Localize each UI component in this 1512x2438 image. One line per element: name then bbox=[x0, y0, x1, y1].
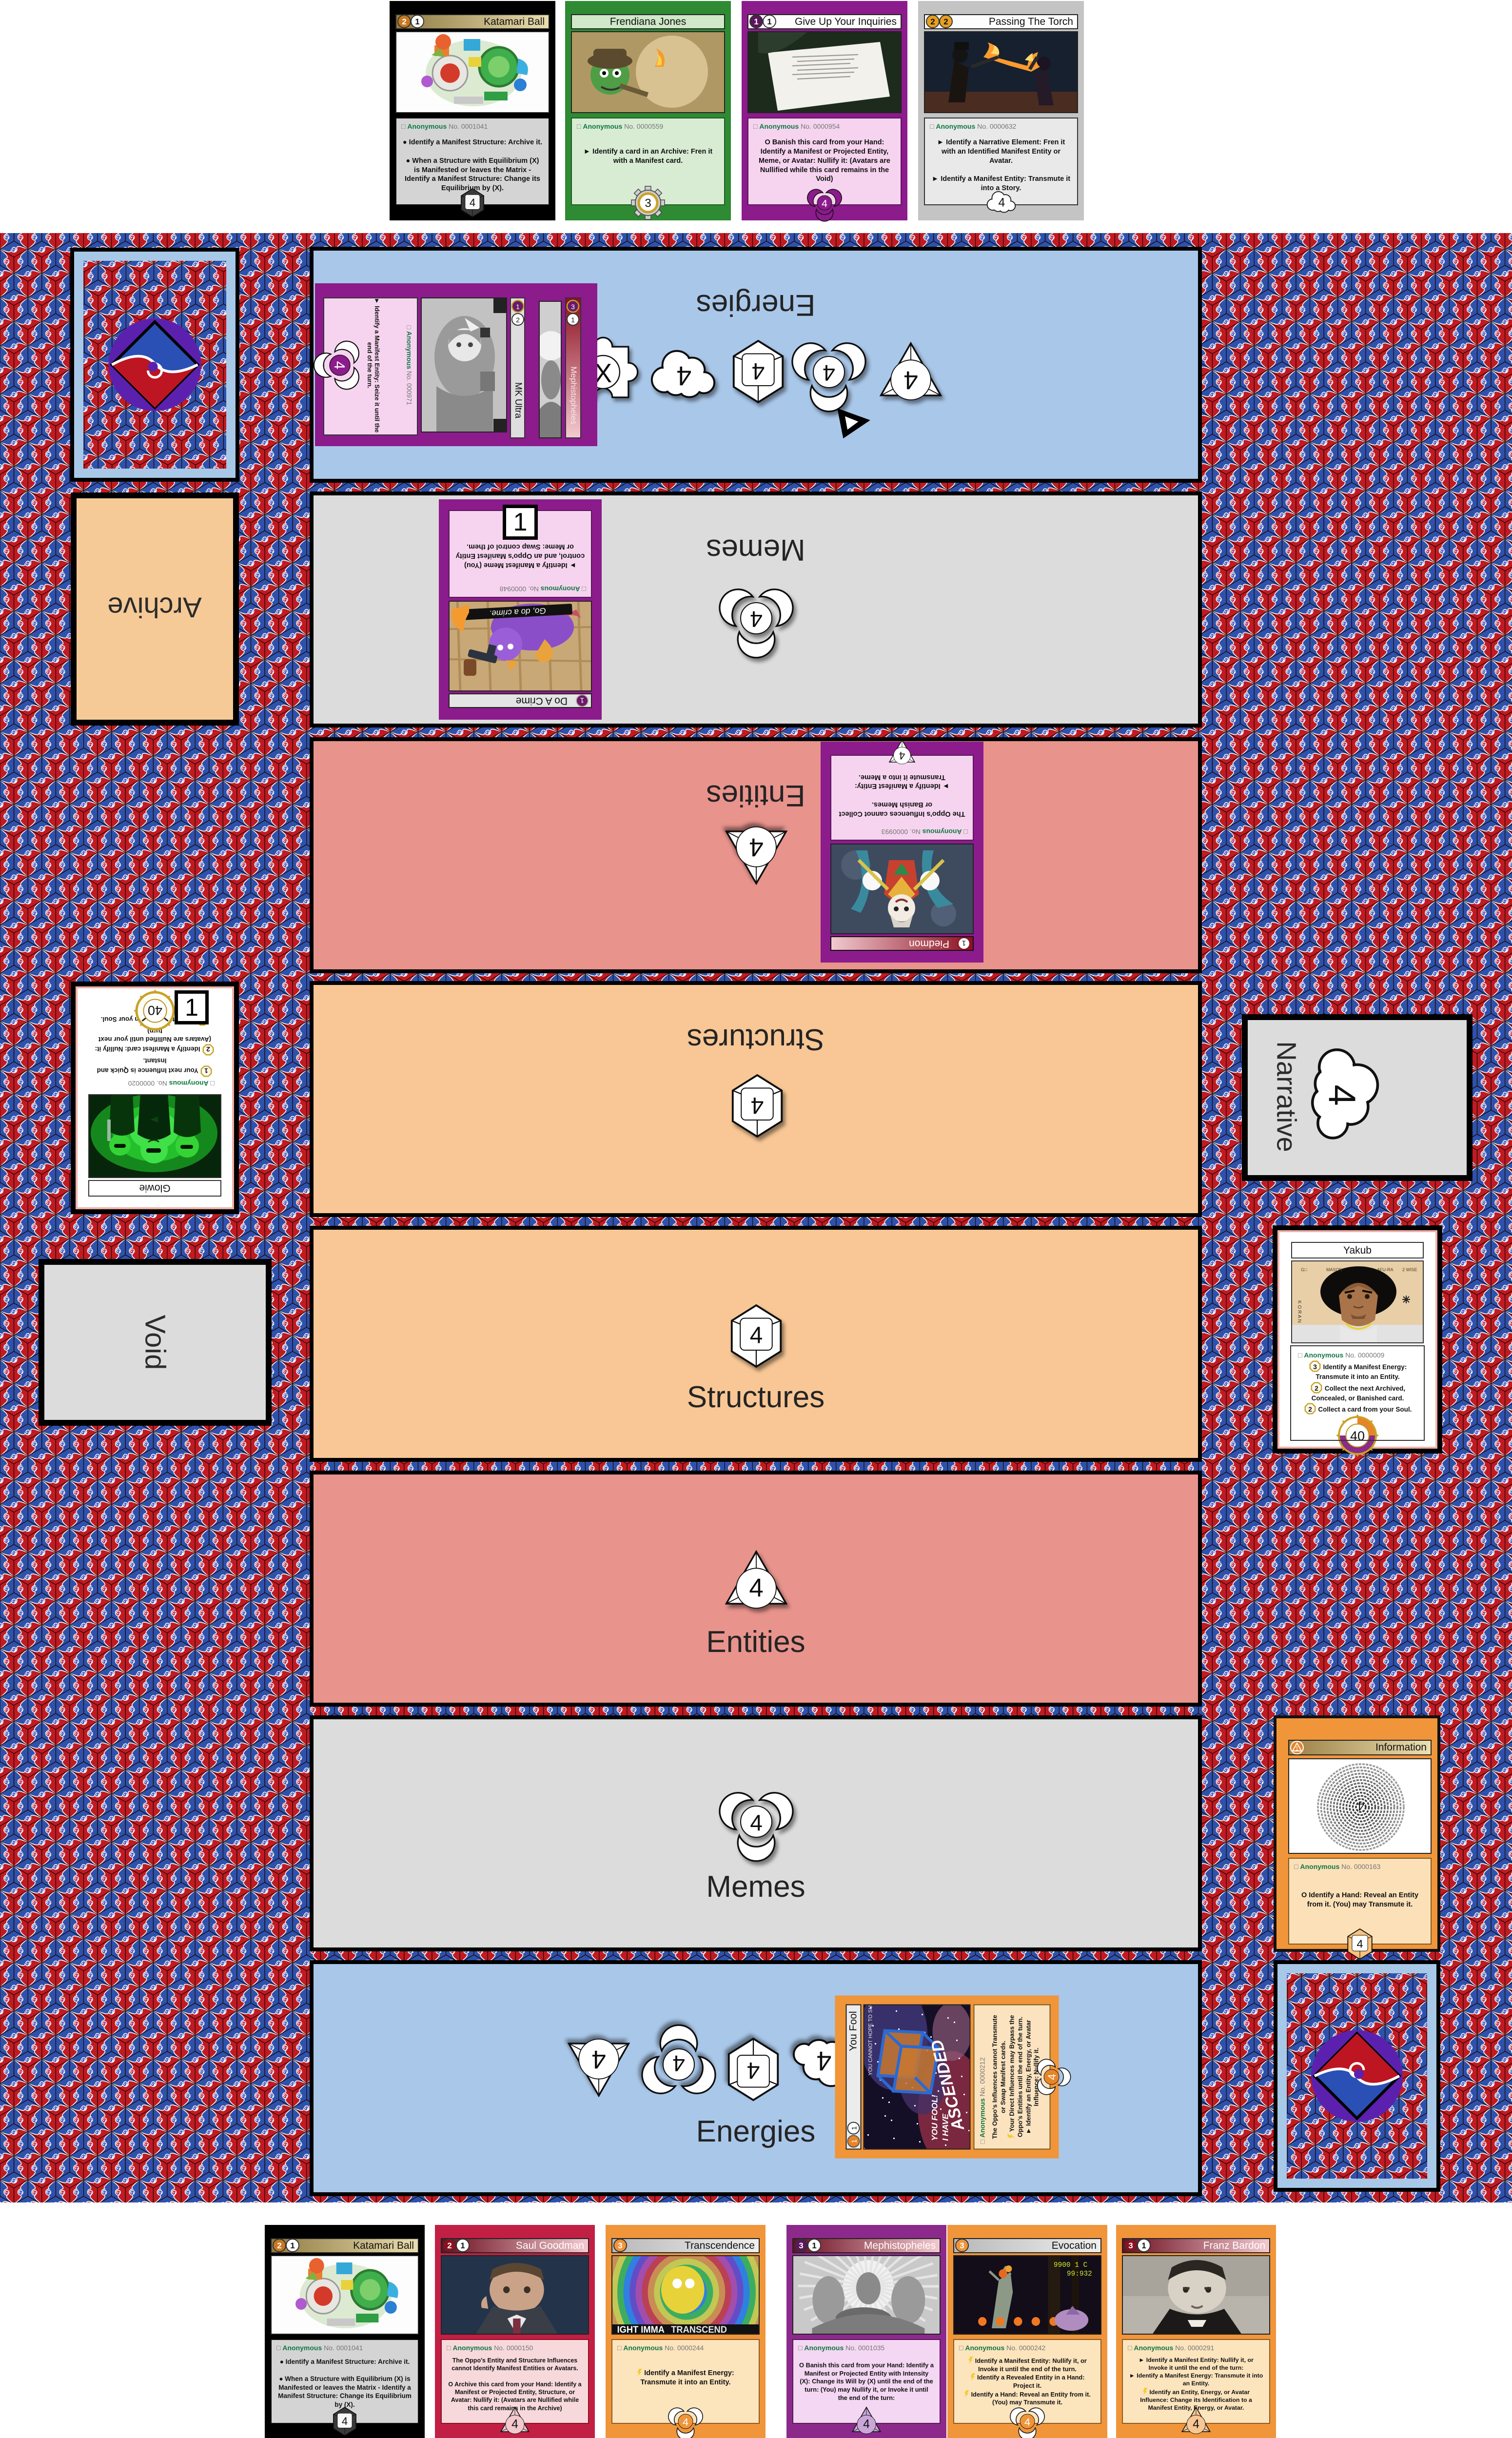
svg-text:YOU FOOL!: YOU FOOL! bbox=[930, 2094, 939, 2141]
svg-text:4: 4 bbox=[1024, 2416, 1030, 2428]
svg-text:4: 4 bbox=[677, 361, 692, 391]
svg-text:3: 3 bbox=[571, 303, 575, 311]
svg-text:1: 1 bbox=[1296, 1745, 1299, 1752]
svg-text:4: 4 bbox=[342, 2415, 348, 2427]
svg-text:4: 4 bbox=[1321, 1084, 1364, 1105]
svg-text:4: 4 bbox=[672, 2051, 685, 2076]
svg-text:4: 4 bbox=[823, 360, 835, 386]
svg-text:4: 4 bbox=[591, 2045, 606, 2073]
svg-text:4: 4 bbox=[683, 2416, 688, 2428]
svg-text:40: 40 bbox=[1350, 1429, 1365, 1443]
svg-text:4: 4 bbox=[1356, 1937, 1363, 1950]
svg-text:1: 1 bbox=[962, 939, 966, 947]
svg-text:MASON: MASON bbox=[1326, 1267, 1342, 1272]
svg-text:4: 4 bbox=[470, 197, 475, 209]
svg-text:IGHT IMMA: IGHT IMMA bbox=[617, 2324, 665, 2335]
svg-text:4: 4 bbox=[1045, 2074, 1058, 2080]
svg-text:4: 4 bbox=[752, 358, 765, 384]
svg-text:K O R A N: K O R A N bbox=[1296, 1300, 1302, 1323]
svg-text:4: 4 bbox=[750, 1322, 763, 1348]
svg-text:4: 4 bbox=[903, 366, 918, 394]
svg-text:4: 4 bbox=[817, 2046, 832, 2076]
svg-text:4: 4 bbox=[511, 2418, 518, 2431]
svg-text:4: 4 bbox=[747, 2057, 760, 2083]
svg-text:4: 4 bbox=[1357, 1799, 1364, 1813]
svg-text:4: 4 bbox=[749, 832, 763, 861]
svg-text:1: 1 bbox=[204, 1067, 208, 1075]
svg-text:4: 4 bbox=[998, 197, 1005, 210]
svg-text:YOU CANNOT HOPE TO SURVIVE: YOU CANNOT HOPE TO SURVIVE bbox=[867, 2004, 873, 2075]
svg-text:9900 1 C: 9900 1 C bbox=[1054, 2261, 1087, 2269]
svg-text:4: 4 bbox=[1193, 2418, 1199, 2431]
svg-text:TRANSCEND: TRANSCEND bbox=[671, 2324, 727, 2335]
svg-text:G□: G□ bbox=[1301, 1267, 1307, 1272]
svg-text:99:932: 99:932 bbox=[1067, 2270, 1092, 2278]
svg-text:4: 4 bbox=[750, 607, 763, 632]
svg-text:3: 3 bbox=[645, 197, 651, 210]
svg-text:AFU-RA: AFU-RA bbox=[1377, 1267, 1394, 1272]
svg-text:2: 2 bbox=[206, 1045, 210, 1053]
svg-text:4: 4 bbox=[751, 1092, 764, 1118]
svg-text:2: 2 bbox=[516, 316, 520, 324]
svg-text:4: 4 bbox=[822, 197, 827, 209]
svg-text:2 WISE: 2 WISE bbox=[1402, 1267, 1417, 1272]
svg-text:1: 1 bbox=[580, 696, 584, 705]
svg-text:4: 4 bbox=[749, 1574, 763, 1603]
svg-text:4: 4 bbox=[750, 1810, 763, 1835]
svg-text:40: 40 bbox=[148, 1003, 162, 1018]
svg-text:1: 1 bbox=[850, 2139, 858, 2143]
svg-text:4: 4 bbox=[899, 749, 905, 762]
svg-text:2: 2 bbox=[1315, 1384, 1318, 1392]
svg-text:1: 1 bbox=[516, 303, 520, 311]
svg-text:1: 1 bbox=[571, 316, 575, 324]
svg-text:1: 1 bbox=[850, 2126, 858, 2130]
svg-text:2: 2 bbox=[1308, 1405, 1312, 1413]
svg-text:3: 3 bbox=[1313, 1363, 1317, 1371]
svg-text:4: 4 bbox=[863, 2418, 870, 2431]
svg-text:4: 4 bbox=[331, 361, 347, 370]
